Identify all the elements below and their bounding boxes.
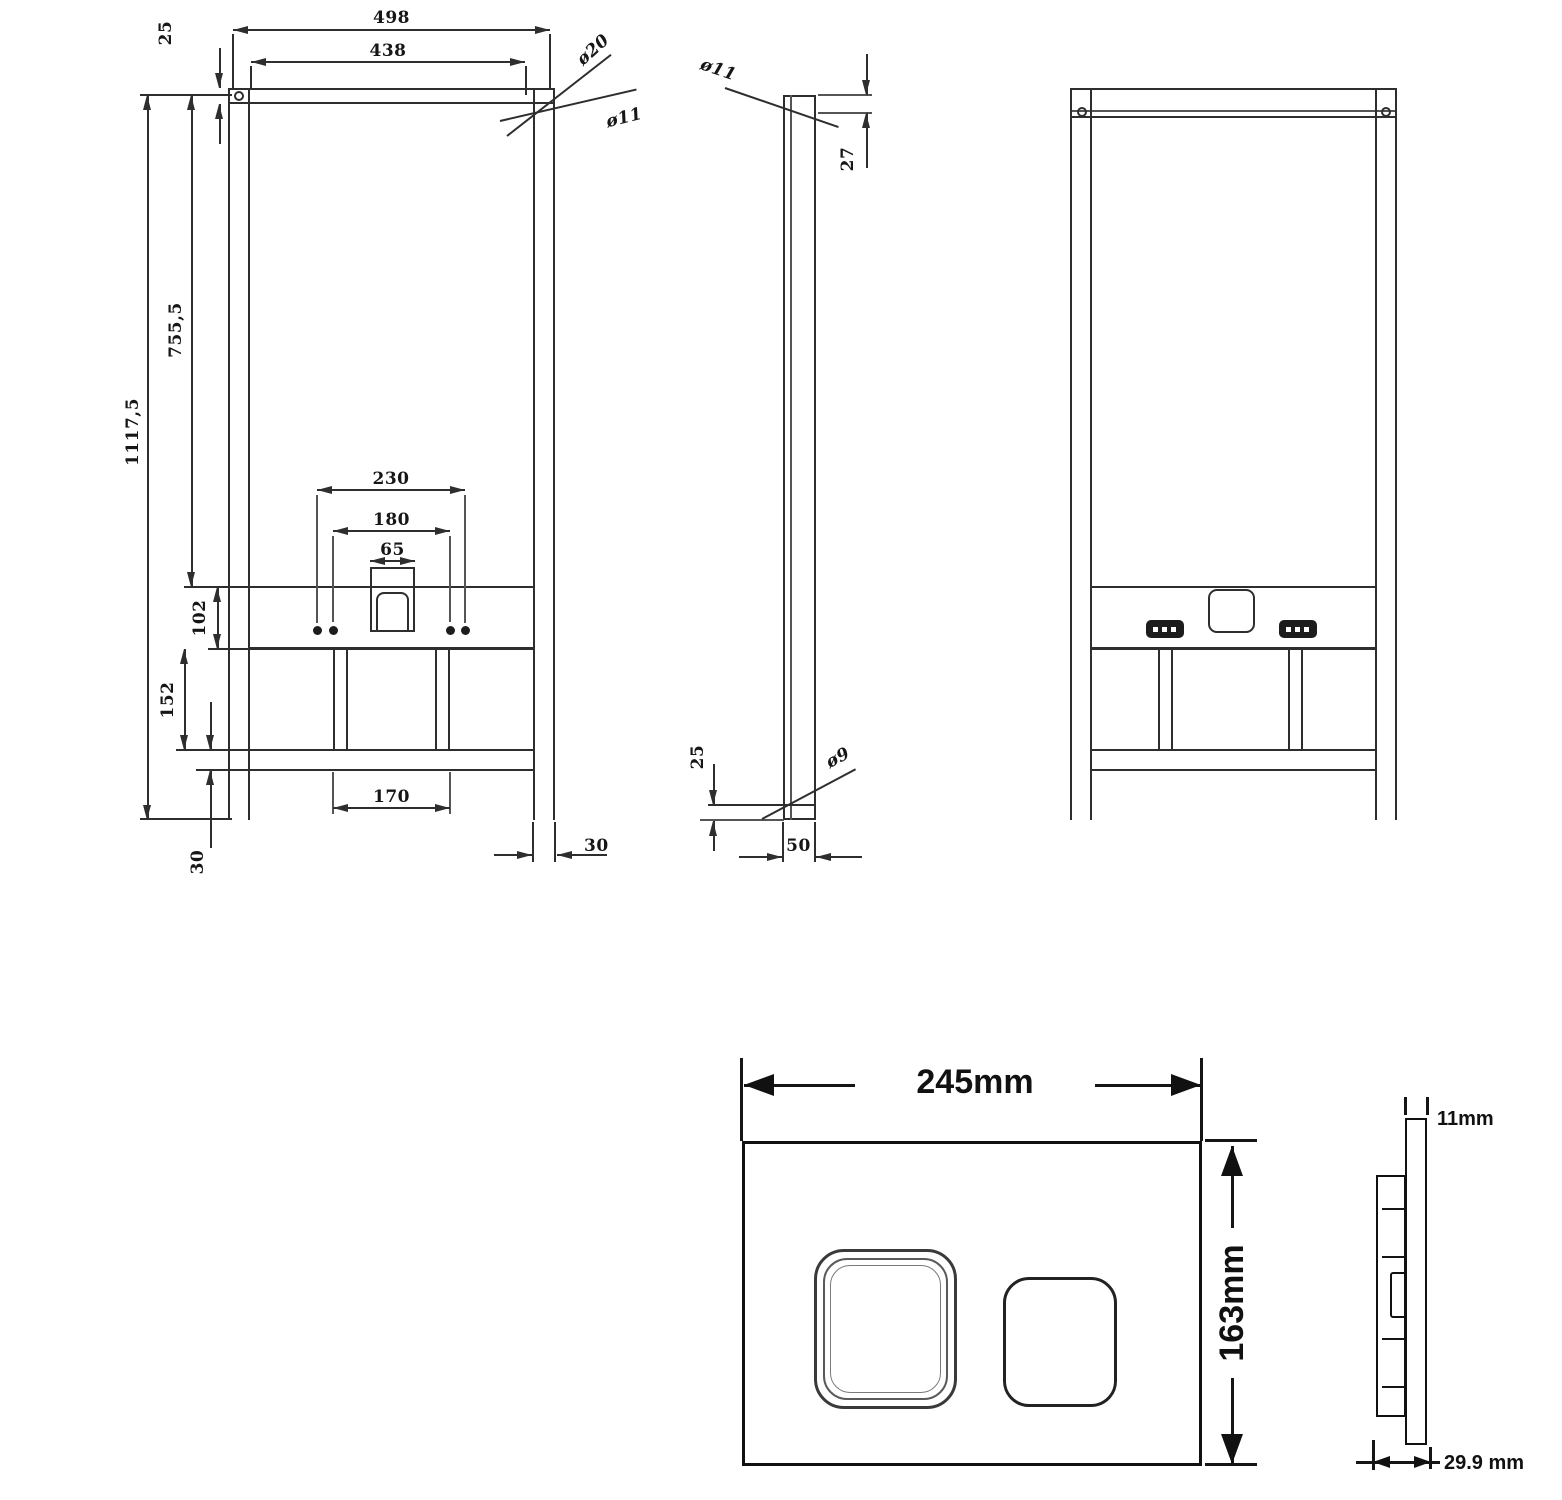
dim25-label: 25 <box>157 13 175 53</box>
front-right-post <box>435 650 450 750</box>
dim438-label: 438 <box>251 41 525 61</box>
dim25b-arrow-down <box>709 790 717 805</box>
dim25b-arrow-up <box>709 821 717 836</box>
dim230-ext-left <box>316 495 318 623</box>
dim170-label: 170 <box>333 787 450 807</box>
dim50-label: 50 <box>781 836 816 856</box>
side-hole11-label: ø11 <box>698 55 739 86</box>
back-left-leg <box>1070 88 1092 820</box>
dim180-line <box>333 530 450 532</box>
dim102-arrow-top <box>213 587 221 602</box>
dim245-arrow-left <box>744 1074 774 1096</box>
back-right-post <box>1288 650 1303 750</box>
dim65-label: 65 <box>370 540 415 560</box>
front-rail-bottom <box>250 769 533 771</box>
back-rail-bottom <box>1092 769 1375 771</box>
plate-side-tab3 <box>1382 1338 1405 1340</box>
back-slot-right-dot1 <box>1286 627 1291 632</box>
dim438-ext-right <box>525 66 527 95</box>
back-band-bottom-chord <box>1092 647 1375 650</box>
front-rail-top <box>250 749 533 751</box>
dim180-ext-left <box>332 536 334 622</box>
dim1117-arrow-bottom <box>143 805 151 820</box>
front-left-leg <box>228 88 250 820</box>
side-profile <box>783 95 816 820</box>
back-right-leg <box>1375 88 1397 820</box>
dim230-label: 230 <box>317 469 465 489</box>
dim152-arrow-bottom <box>180 735 188 750</box>
front-left-post <box>333 650 348 750</box>
dim102-label: 102 <box>191 597 209 639</box>
plate-side-tab4 <box>1382 1386 1405 1388</box>
front-hole11-label: ø11 <box>604 104 644 132</box>
front-top-left-hole <box>234 91 244 101</box>
dim1117-label: 1117,5 <box>124 398 142 466</box>
dim50-arrow-right <box>767 853 782 861</box>
dim163-label: 163mm <box>1213 1228 1251 1378</box>
front-hole20-label: ø20 <box>573 30 614 69</box>
dim25-arrow-down <box>215 73 223 88</box>
side-hole9-label: ø9 <box>823 743 854 772</box>
plate-side-latch <box>1390 1272 1407 1318</box>
dim498-line <box>233 29 550 31</box>
back-top-bar <box>1070 88 1397 118</box>
front-right-leg <box>533 88 555 820</box>
back-screw-left <box>1077 107 1087 117</box>
dim27-arrow-up <box>862 113 870 128</box>
back-slot-right-dot2 <box>1295 627 1300 632</box>
dim245-label: 245mm <box>855 1064 1095 1101</box>
dim230-line <box>317 489 465 491</box>
dim170-line <box>333 807 450 809</box>
dim245-arrow-right <box>1171 1074 1201 1096</box>
dim755-arrow-top <box>187 95 195 110</box>
dim498-ext-right <box>549 34 551 88</box>
dim27-arrow-down <box>862 80 870 95</box>
dim180-label: 180 <box>333 510 450 530</box>
dim102-ext <box>208 648 252 650</box>
back-slot-left-dot2 <box>1162 627 1167 632</box>
dim25b-label: 25 <box>689 735 707 779</box>
dim27-label: 27 <box>839 137 857 181</box>
dim230-ext-right <box>464 495 466 623</box>
front-bolt-hole-4 <box>461 626 470 635</box>
back-slot-right-dot3 <box>1304 627 1309 632</box>
back-slot-left-dot3 <box>1171 627 1176 632</box>
plate-side-tab2 <box>1382 1256 1405 1258</box>
dim30L-arrow-down <box>206 735 214 750</box>
dim163-arrow-up <box>1221 1146 1243 1176</box>
side-bottom-hole-line <box>708 804 816 806</box>
dim152-arrow-top <box>180 649 188 664</box>
dim152-label: 152 <box>159 678 177 722</box>
dim498-label: 498 <box>233 8 550 28</box>
dim1117-ext-bottom <box>140 818 232 820</box>
front-bolt-hole-1 <box>313 626 322 635</box>
plate-body <box>742 1141 1202 1466</box>
dim299-label: 29.9 mm <box>1444 1452 1524 1475</box>
dim299-arrow-right <box>1414 1456 1431 1468</box>
dim30R-arrow-left <box>557 851 572 859</box>
flush-button-large-inner <box>830 1265 941 1393</box>
dim245-ext-left <box>740 1058 743 1141</box>
back-left-post <box>1158 650 1173 750</box>
technical-drawing-canvas: ø20 ø11 498 438 25 <box>0 0 1562 1500</box>
dim163-arrow-down <box>1221 1434 1243 1464</box>
dim498-ext-left <box>232 34 234 88</box>
front-band-bottom-chord <box>250 647 533 650</box>
dim438-line <box>251 61 525 63</box>
back-screw-right <box>1381 107 1391 117</box>
back-band-top-chord <box>1092 586 1375 588</box>
dim1117-ext-top <box>140 94 232 96</box>
dim755-arrow-bottom <box>187 572 195 587</box>
dim755-label: 755,5 <box>167 295 185 365</box>
dim245-ext-right <box>1200 1058 1203 1141</box>
dim1117-arrow-top <box>143 95 151 110</box>
front-top-bar <box>228 88 555 104</box>
dim11-label: 11mm <box>1437 1108 1494 1131</box>
dim152-ext <box>176 749 252 751</box>
back-outlet-opening <box>1208 589 1255 633</box>
dim180-ext-right <box>449 536 451 622</box>
dim30L-ext <box>196 769 252 771</box>
dim30R-label: 30 <box>584 836 609 856</box>
plate-side-panel <box>1405 1118 1427 1445</box>
dim30R-ext-left <box>532 822 534 862</box>
dim1117-line <box>147 95 149 820</box>
flush-button-small <box>1003 1277 1117 1407</box>
dim30L-label: 30 <box>189 841 207 883</box>
dim102-arrow-bottom <box>213 634 221 649</box>
dim299-arrow-left <box>1373 1456 1390 1468</box>
back-top-bar-inner-line <box>1072 110 1395 112</box>
dim25-arrow-up <box>215 104 223 119</box>
side-profile-inner-line <box>790 95 792 820</box>
front-bolt-hole-2 <box>329 626 338 635</box>
front-outlet-arch <box>376 592 409 632</box>
dim11-tick-right <box>1426 1097 1429 1115</box>
dim30R-arrow-right <box>517 851 532 859</box>
back-slot-left-dot1 <box>1153 627 1158 632</box>
dim30L-arrow-up <box>206 770 214 785</box>
dim438-ext-left <box>250 66 252 88</box>
dim11-tick-left <box>1404 1097 1407 1115</box>
plate-side-tab1 <box>1382 1208 1405 1210</box>
front-bolt-hole-3 <box>446 626 455 635</box>
dim30R-ext-right <box>554 822 556 862</box>
back-rail-top <box>1092 749 1375 751</box>
dim50-arrow-left <box>816 853 831 861</box>
dim755-line <box>191 95 193 587</box>
dim163-ext-top <box>1205 1139 1257 1142</box>
